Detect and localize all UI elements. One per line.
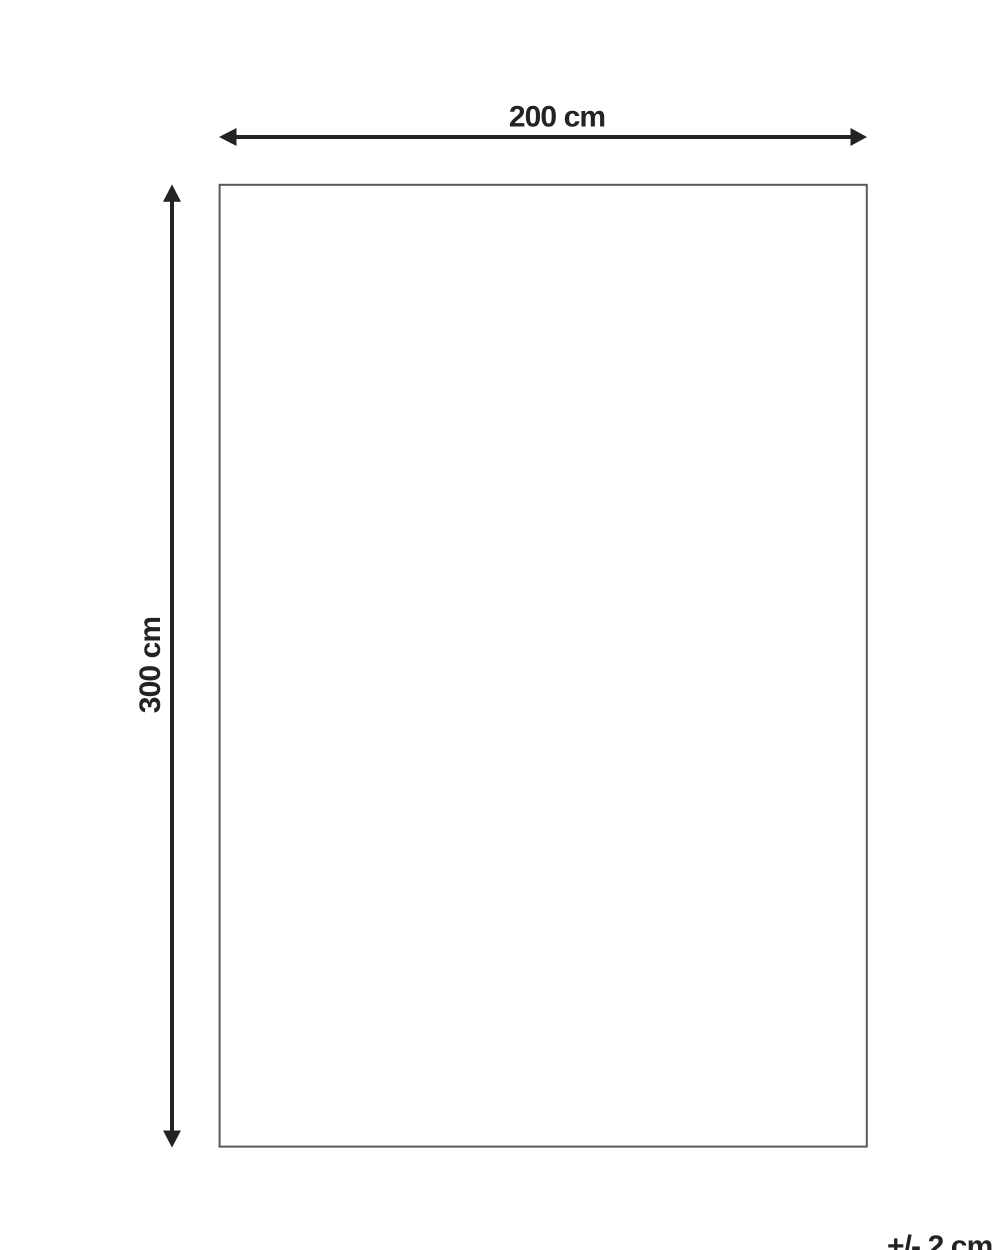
svg-text:200 cm: 200 cm [509, 101, 605, 134]
svg-text:300 cm: 300 cm [134, 617, 167, 713]
svg-text:+/- 2 cm: +/- 2 cm [887, 1230, 992, 1250]
